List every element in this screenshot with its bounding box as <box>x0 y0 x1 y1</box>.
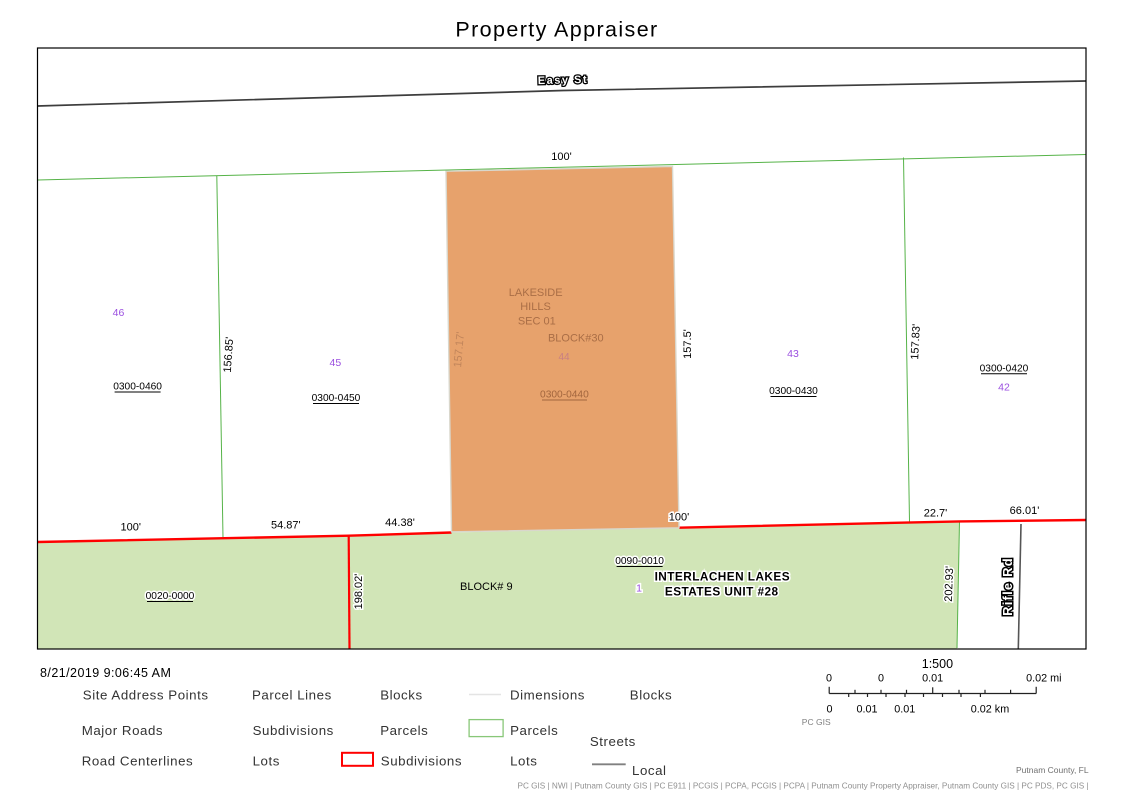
svg-text:43: 43 <box>787 348 799 360</box>
svg-text:0: 0 <box>878 673 884 685</box>
svg-text:Local: Local <box>632 763 667 778</box>
svg-text:0300-0440: 0300-0440 <box>540 390 589 401</box>
svg-text:Streets: Streets <box>590 734 636 749</box>
svg-text:0020-0000: 0020-0000 <box>146 591 195 602</box>
svg-text:Major Roads: Major Roads <box>82 723 163 738</box>
svg-text:Lots: Lots <box>253 754 280 769</box>
svg-text:0: 0 <box>826 704 832 716</box>
svg-text:Parcels: Parcels <box>510 723 558 738</box>
svg-text:198.02': 198.02' <box>353 574 365 610</box>
svg-text:0300-0420: 0300-0420 <box>980 363 1029 374</box>
svg-text:100': 100' <box>120 522 140 534</box>
svg-text:54.87': 54.87' <box>271 520 301 532</box>
svg-text:Dimensions: Dimensions <box>510 688 585 703</box>
svg-text:66.01': 66.01' <box>1010 505 1040 517</box>
svg-text:Subdivisions: Subdivisions <box>253 723 334 738</box>
svg-text:45: 45 <box>330 357 342 369</box>
svg-text:0300-0450: 0300-0450 <box>312 393 361 404</box>
svg-text:0.01: 0.01 <box>922 673 943 685</box>
svg-text:SEC 01: SEC 01 <box>518 315 556 327</box>
svg-text:1: 1 <box>636 582 642 594</box>
svg-text:PC GIS: PC GIS <box>802 717 831 727</box>
svg-text:157.83': 157.83' <box>909 324 923 360</box>
svg-text:Parcel Lines: Parcel Lines <box>252 688 332 703</box>
svg-text:42: 42 <box>998 382 1010 394</box>
svg-text:Property Appraiser: Property Appraiser <box>455 18 658 42</box>
svg-text:Parcels: Parcels <box>380 723 428 738</box>
svg-text:100': 100' <box>551 151 571 163</box>
svg-text:202.93': 202.93' <box>943 566 956 602</box>
svg-text:156.85': 156.85' <box>222 337 236 374</box>
svg-text:BLOCK#30: BLOCK#30 <box>548 332 604 344</box>
svg-text:0.01: 0.01 <box>856 704 877 716</box>
svg-text:0: 0 <box>826 673 832 685</box>
svg-text:22.7': 22.7' <box>924 507 948 519</box>
svg-text:0.01: 0.01 <box>894 704 915 716</box>
svg-text:100': 100' <box>669 511 689 523</box>
svg-text:Lots: Lots <box>510 754 537 769</box>
svg-text:46: 46 <box>113 307 125 319</box>
svg-text:LAKESIDE: LAKESIDE <box>509 287 563 299</box>
svg-text:0300-0460: 0300-0460 <box>113 382 162 393</box>
svg-text:Putnam County, FL: Putnam County, FL <box>1016 765 1089 775</box>
svg-text:0090-0010: 0090-0010 <box>615 556 664 567</box>
svg-text:BLOCK# 9: BLOCK# 9 <box>460 581 513 593</box>
svg-text:Rifle Rd: Rifle Rd <box>1000 557 1015 616</box>
svg-text:44.38': 44.38' <box>385 517 415 529</box>
svg-text:PC GIS | NWI | Putnam County G: PC GIS | NWI | Putnam County GIS | PC E9… <box>518 782 1089 791</box>
svg-text:Blocks: Blocks <box>380 688 422 703</box>
svg-text:Site Address Points: Site Address Points <box>83 688 209 703</box>
svg-text:ESTATES UNIT #28: ESTATES UNIT #28 <box>665 585 779 599</box>
svg-text:INTERLACHEN LAKES: INTERLACHEN LAKES <box>655 569 790 583</box>
svg-text:0300-0430: 0300-0430 <box>769 386 818 397</box>
svg-text:0.02 mi: 0.02 mi <box>1026 673 1061 685</box>
svg-text:Blocks: Blocks <box>630 688 672 703</box>
svg-text:0.02 km: 0.02 km <box>971 704 1009 716</box>
svg-text:Subdivisions: Subdivisions <box>381 754 462 769</box>
svg-text:8/21/2019 9:06:45 AM: 8/21/2019 9:06:45 AM <box>40 666 171 680</box>
svg-text:44: 44 <box>558 352 570 363</box>
svg-text:Easy St: Easy St <box>538 74 589 87</box>
svg-text:1:500: 1:500 <box>922 657 953 671</box>
svg-text:HILLS: HILLS <box>520 301 551 313</box>
svg-text:157.5': 157.5' <box>682 329 694 359</box>
svg-text:Road Centerlines: Road Centerlines <box>82 754 194 769</box>
